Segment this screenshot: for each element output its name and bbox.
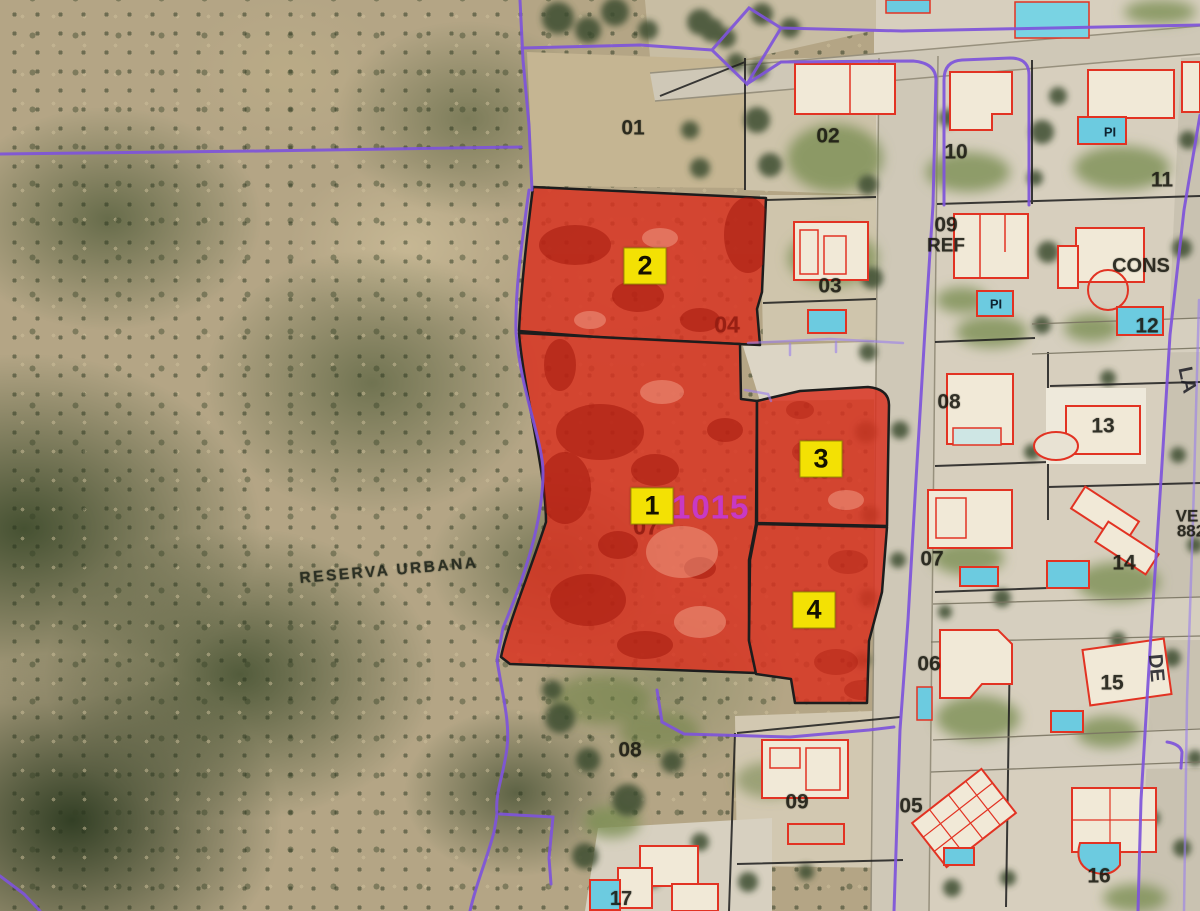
plot-number-label-09: 09 <box>785 792 808 813</box>
plot-number-label-14: 14 <box>1112 553 1135 574</box>
pool-label-PI: PI <box>1104 126 1116 139</box>
street-label-LA: LA <box>1174 365 1199 395</box>
plot-number-label-08: 08 <box>937 392 960 413</box>
plot-number-label-12: 12 <box>1135 316 1158 337</box>
pool-label-PI: PI <box>990 298 1002 311</box>
map-labels-layer: 2134040705010203101109REFCONS1213080714V… <box>0 0 1200 911</box>
plot-number-label-11: 11 <box>1151 170 1173 191</box>
plot-number-label-CONS: CONS <box>1112 256 1170 276</box>
plot-number-label-09: 09 <box>934 215 957 236</box>
plot-number-label-07: 07 <box>920 549 943 570</box>
parcel-badge-2: 2 <box>623 248 666 285</box>
parcel-badge-1: 1 <box>630 488 673 525</box>
plot-number-label-16: 16 <box>1087 866 1110 887</box>
plot-number-label-03: 03 <box>818 276 841 297</box>
plot-number-label-17: 17 <box>610 889 632 909</box>
parcel-badge-4: 4 <box>792 592 835 629</box>
cadastral-map-screenshot: 2134040705010203101109REFCONS1213080714V… <box>0 0 1200 911</box>
plot-number-label-10: 10 <box>944 142 967 163</box>
sub-parcel-label-04: 04 <box>714 314 740 337</box>
street-label-DE: DE <box>1145 653 1167 682</box>
plot-number-label-882: 882 <box>1177 523 1200 540</box>
plot-number-label-REF: REF <box>927 237 965 256</box>
plot-number-label-05: 05 <box>899 796 922 817</box>
plot-number-label-15: 15 <box>1100 673 1123 694</box>
plot-number-label-08: 08 <box>618 740 641 761</box>
plot-number-label-01: 01 <box>621 118 644 139</box>
plot-number-label-06: 06 <box>917 654 940 675</box>
parcel-badge-3: 3 <box>799 441 842 478</box>
plot-number-label-13: 13 <box>1091 416 1114 437</box>
reserva-urbana-label: RESERVA URBANA <box>299 555 479 586</box>
plot-number-label-02: 02 <box>816 126 839 147</box>
